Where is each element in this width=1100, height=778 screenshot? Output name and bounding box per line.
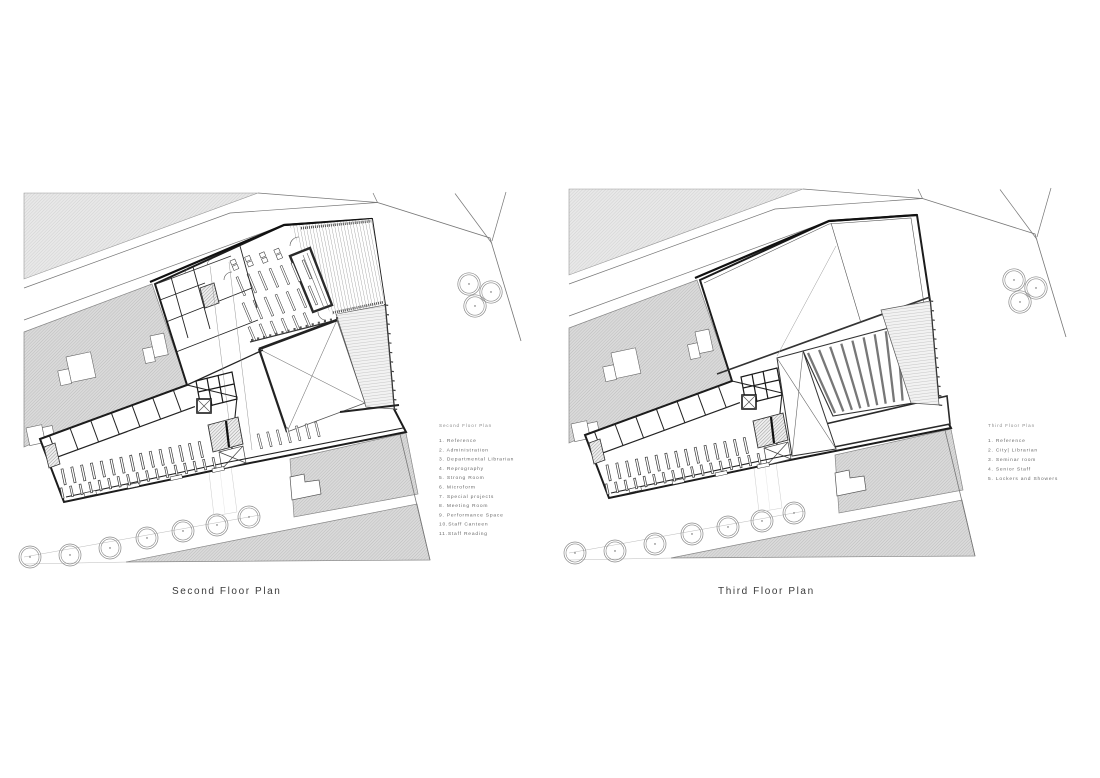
svg-text:5. Strong Room: 5. Strong Room [439,475,484,481]
svg-text:4. Reprography: 4. Reprography [439,466,484,472]
svg-text:7. Special projects: 7. Special projects [439,494,494,500]
svg-text:Third Floor Plan: Third Floor Plan [988,423,1035,428]
svg-text:1. Reference: 1. Reference [988,438,1026,444]
svg-text:2. Administration: 2. Administration [439,447,489,453]
svg-text:6. Microform: 6. Microform [439,485,476,491]
svg-text:11.Staff Reading: 11.Staff Reading [439,531,488,537]
svg-text:2. City| Librarian: 2. City| Librarian [988,448,1038,454]
svg-text:Third Floor Plan: Third Floor Plan [718,586,815,597]
svg-text:1. Reference: 1. Reference [439,438,477,444]
svg-text:3. Seminar room: 3. Seminar room [988,457,1036,463]
svg-text:3. Departmental Librarian: 3. Departmental Librarian [439,457,514,463]
svg-text:5. Lockers and Showers: 5. Lockers and Showers [988,476,1058,482]
svg-text:10.Staff Canteen: 10.Staff Canteen [439,522,488,528]
svg-text:Second Floor Plan: Second Floor Plan [172,586,281,597]
svg-text:4. Senior Staff: 4. Senior Staff [988,467,1031,473]
svg-text:8. Meeting Room: 8. Meeting Room [439,503,488,509]
svg-text:Second Floor Plan: Second Floor Plan [439,423,492,428]
svg-text:9. Performance Space: 9. Performance Space [439,512,504,518]
